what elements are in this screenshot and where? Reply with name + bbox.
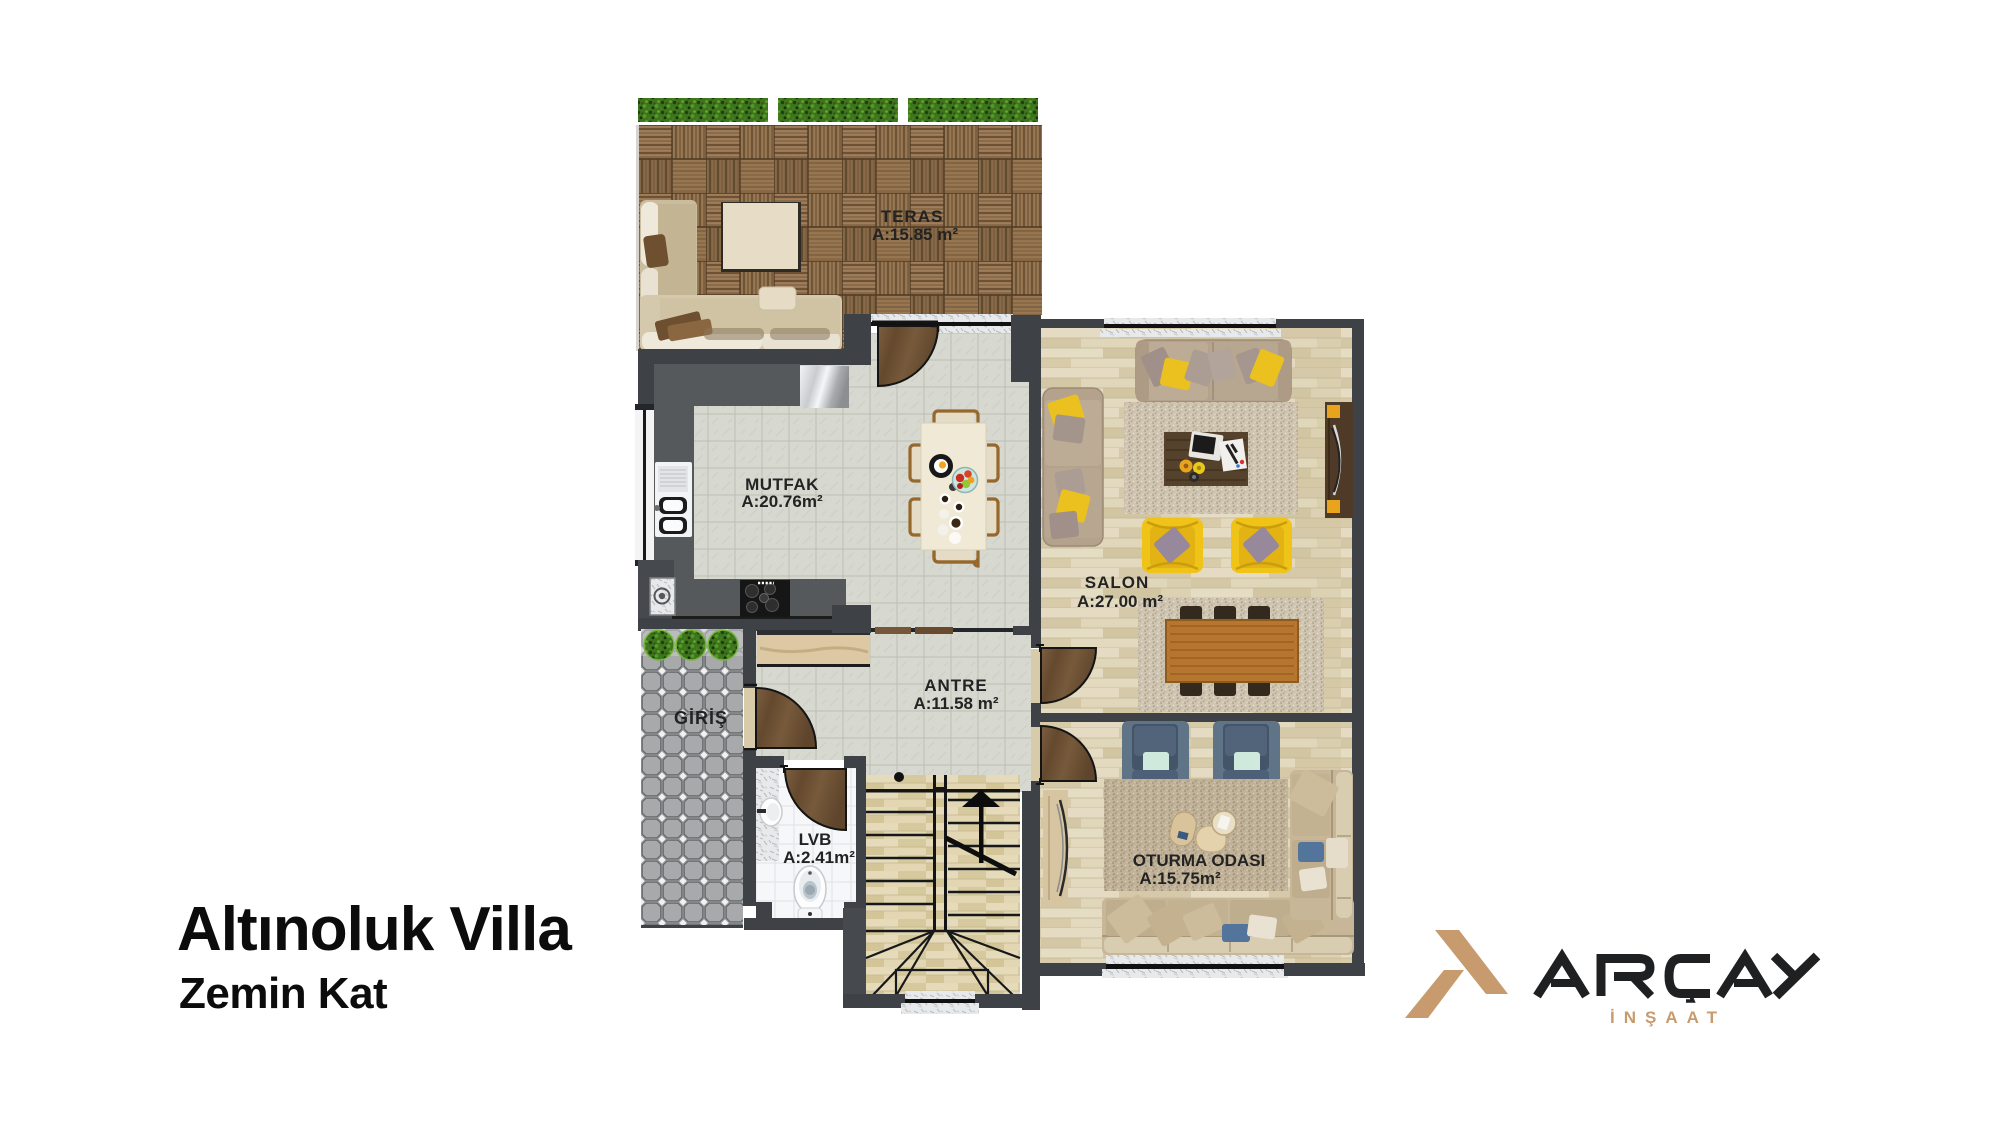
svg-text:LVB: LVB xyxy=(799,830,832,849)
svg-text:Altınoluk Villa: Altınoluk Villa xyxy=(177,895,572,964)
svg-text:A:27.00 m²: A:27.00 m² xyxy=(1077,592,1163,611)
svg-text:A:15.85 m²: A:15.85 m² xyxy=(872,225,958,244)
svg-text:İNŞAAT: İNŞAAT xyxy=(1610,1008,1726,1027)
svg-text:A:15.75m²: A:15.75m² xyxy=(1139,869,1221,888)
svg-text:ANTRE: ANTRE xyxy=(924,676,988,695)
svg-text:A:11.58 m²: A:11.58 m² xyxy=(913,694,998,713)
svg-text:OTURMA ODASI: OTURMA ODASI xyxy=(1133,851,1266,870)
svg-text:TERAS: TERAS xyxy=(881,207,944,226)
svg-text:SALON: SALON xyxy=(1085,573,1150,592)
svg-text:A:20.76m²: A:20.76m² xyxy=(741,492,823,511)
svg-text:A:2.41m²: A:2.41m² xyxy=(783,848,855,867)
svg-text:Zemin Kat: Zemin Kat xyxy=(179,969,388,1018)
svg-text:GİRİŞ: GİRİŞ xyxy=(674,708,728,728)
